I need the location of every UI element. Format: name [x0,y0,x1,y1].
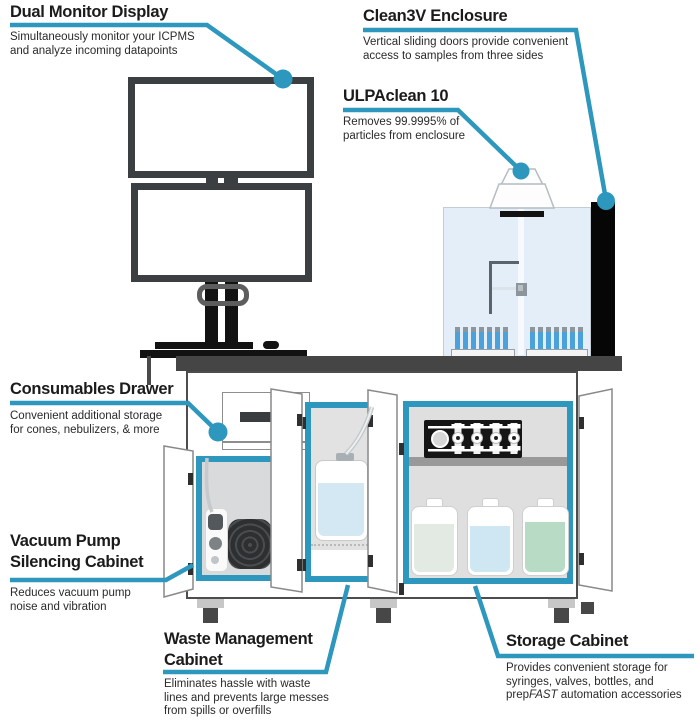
desc-line: Removes 99.9995% of [343,116,465,130]
diagram-overlay [0,0,700,728]
callout-desc-vacuum-pump: Reduces vacuum pump noise and vibration [10,587,131,614]
title-line: Vacuum Pump [10,531,143,552]
desc-line: particles from enclosure [343,130,465,144]
desc-line: access to samples from three sides [363,50,568,64]
callout-dot-clean3v [597,192,615,210]
desc-line: lines and prevents large messes [164,692,329,706]
callout-desc-dual-monitor: Simultaneously monitor your ICPMS and an… [10,31,195,58]
callout-dot-dual-monitor [274,70,293,89]
desc-line: Vertical sliding doors provide convenien… [363,36,568,50]
desc-line: prepFAST automation accessories [506,689,682,703]
callout-dot-ulpaclean [513,163,530,180]
callout-title-storage: Storage Cabinet [506,631,628,652]
desc-line: from spills or overfills [164,705,329,719]
desc-line: for cones, nebulizers, & more [10,424,162,438]
desc-part-italic: FAST [529,689,558,701]
desc-line: and analyze incoming datapoints [10,45,195,59]
callout-title-waste: Waste Management Cabinet [164,629,313,671]
title-line: Silencing Cabinet [10,552,143,573]
title-line: Cabinet [164,650,313,671]
desc-line: syringes, valves, bottles, and [506,676,682,690]
title-line: Waste Management [164,629,313,650]
callout-title-consumables: Consumables Drawer [10,379,173,400]
callout-desc-ulpaclean: Removes 99.9995% of particles from enclo… [343,116,465,143]
callout-title-ulpaclean: ULPAclean 10 [343,86,448,107]
desc-line: noise and vibration [10,601,131,615]
callout-desc-clean3v: Vertical sliding doors provide convenien… [363,36,568,63]
desc-line: Convenient additional storage [10,410,162,424]
desc-part: prep [506,689,529,701]
callout-desc-storage: Provides convenient storage for syringes… [506,662,682,703]
desc-line: Provides convenient storage for [506,662,682,676]
desc-line: Eliminates hassle with waste [164,678,329,692]
desc-part: automation accessories [558,689,682,701]
callout-title-clean3v: Clean3V Enclosure [363,6,507,27]
cabinet-doors [164,389,612,597]
valve-module [424,420,522,458]
desc-line: Reduces vacuum pump [10,587,131,601]
callout-desc-waste: Eliminates hassle with waste lines and p… [164,678,329,719]
callout-desc-consumables: Convenient additional storage for cones,… [10,410,162,437]
callout-title-dual-monitor: Dual Monitor Display [10,2,168,23]
desc-line: Simultaneously monitor your ICPMS [10,31,195,45]
pump-tube [207,458,212,512]
callout-dot-consumables [209,423,228,442]
callout-title-vacuum-pump: Vacuum Pump Silencing Cabinet [10,531,143,573]
icpms-workstation-diagram: Dual Monitor Display Simultaneously moni… [0,0,700,728]
